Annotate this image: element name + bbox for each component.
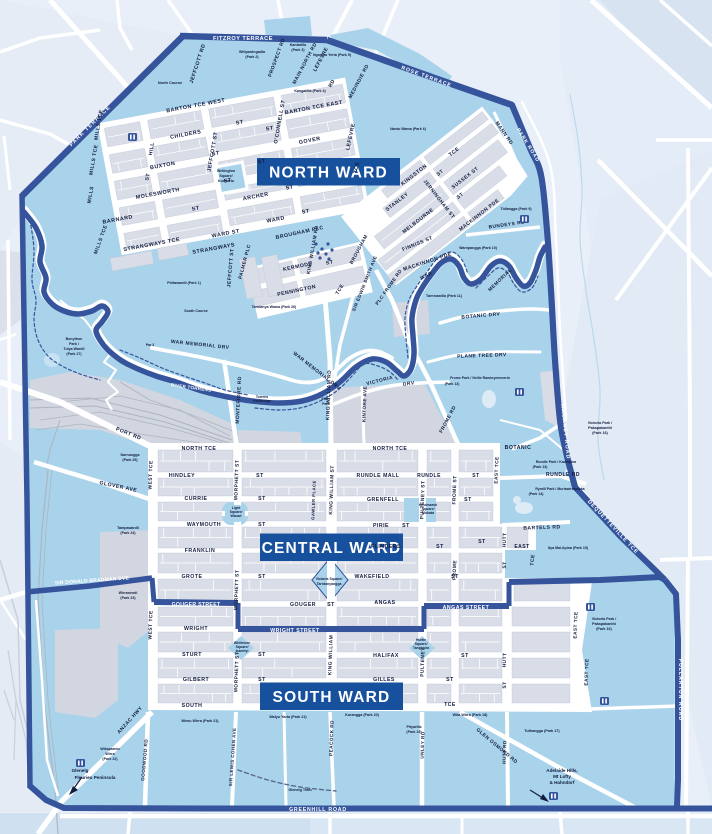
svg-text:GOUGER STREET: GOUGER STREET <box>172 602 221 608</box>
svg-text:Mirnu Wirra (Park 21): Mirnu Wirra (Park 21) <box>181 719 219 723</box>
svg-text:Kurangga (Park 20): Kurangga (Park 20) <box>345 713 380 717</box>
svg-text:WAKEFIELD: WAKEFIELD <box>354 574 389 580</box>
svg-text:FROME ST: FROME ST <box>451 475 458 504</box>
svg-text:EAST TCE: EAST TCE <box>584 658 590 685</box>
svg-text:ANGAS STREET: ANGAS STREET <box>443 605 490 611</box>
svg-text:Wirra: Wirra <box>105 752 115 756</box>
svg-text:ST: ST <box>402 523 410 529</box>
svg-text:Pirltawardli (Park 1): Pirltawardli (Park 1) <box>167 281 201 285</box>
svg-text:TCE: TCE <box>444 702 456 708</box>
svg-text:TCE: TCE <box>530 554 537 566</box>
svg-text:Pakapakanthi: Pakapakanthi <box>588 426 612 430</box>
svg-text:Glenelg: Glenelg <box>72 768 89 773</box>
svg-text:FRANKLIN: FRANKLIN <box>185 548 216 554</box>
svg-text:(Park 13): (Park 13) <box>533 465 548 469</box>
svg-text:NORTH TCE: NORTH TCE <box>373 446 408 452</box>
svg-text:WRIGHT: WRIGHT <box>184 626 208 632</box>
svg-text:Walyu Yarta (Park 21): Walyu Yarta (Park 21) <box>269 715 307 719</box>
svg-text:(Park 12): (Park 12) <box>445 382 460 386</box>
svg-text:FLINDERS: FLINDERS <box>371 544 401 550</box>
svg-text:SOUTH: SOUTH <box>182 703 203 709</box>
svg-text:(Park 3): (Park 3) <box>291 48 305 52</box>
svg-text:ST: ST <box>436 544 444 550</box>
svg-text:Pakapakanthi: Pakapakanthi <box>592 622 616 626</box>
svg-text:Iparrityi: Iparrityi <box>236 649 249 653</box>
svg-text:RUNDLE: RUNDLE <box>417 473 441 479</box>
svg-text:WRIGHT STREET: WRIGHT STREET <box>270 628 320 634</box>
svg-text:ST: ST <box>464 497 472 503</box>
svg-text:Tampawardli: Tampawardli <box>117 526 139 530</box>
svg-text:WAYMOUTH: WAYMOUTH <box>187 522 221 528</box>
svg-text:Wauwi: Wauwi <box>231 514 242 518</box>
svg-text:North Course: North Course <box>158 81 182 85</box>
svg-text:HALIFAX: HALIFAX <box>373 653 399 659</box>
svg-text:RUNDLE RD: RUNDLE RD <box>546 472 580 478</box>
svg-text:Tarntanya Wama (Park 26): Tarntanya Wama (Park 26) <box>252 305 297 309</box>
svg-text:PIRIE: PIRIE <box>373 523 389 529</box>
svg-text:NORTH WARD: NORTH WARD <box>269 165 388 182</box>
svg-text:Warnpangga (Park 10): Warnpangga (Park 10) <box>459 246 498 250</box>
svg-text:UNLEY RD: UNLEY RD <box>420 731 426 759</box>
svg-text:BOTANIC: BOTANIC <box>505 445 532 451</box>
svg-text:EAST TCE: EAST TCE <box>494 456 500 483</box>
svg-text:Pityarilla: Pityarilla <box>407 725 423 729</box>
svg-text:ST: ST <box>461 653 469 659</box>
svg-text:Mukata: Mukata <box>422 511 434 515</box>
svg-text:ST: ST <box>258 677 266 683</box>
svg-text:FROME: FROME <box>452 560 459 581</box>
svg-text:(Park 23): (Park 23) <box>120 596 136 600</box>
svg-text:Nantu Wama (Park 6): Nantu Wama (Park 6) <box>390 127 427 131</box>
svg-text:ST: ST <box>258 522 266 528</box>
svg-text:Witipardngadla: Witipardngadla <box>239 50 266 54</box>
svg-text:ST: ST <box>327 602 335 608</box>
svg-text:Tarnmanilla (Park 11): Tarnmanilla (Park 11) <box>426 294 463 298</box>
svg-text:ST: ST <box>478 539 485 545</box>
svg-text:GREENHILL ROAD: GREENHILL ROAD <box>289 807 347 813</box>
svg-text:STURT: STURT <box>182 652 202 658</box>
svg-text:Tulya Wardli: Tulya Wardli <box>64 347 85 351</box>
svg-text:EAST: EAST <box>514 544 529 550</box>
svg-text:South Course: South Course <box>184 309 208 313</box>
svg-text:HUTT: HUTT <box>502 532 509 547</box>
svg-text:Itya Mai-itpina (Park 15): Itya Mai-itpina (Park 15) <box>548 546 589 550</box>
svg-text:NORTH TCE: NORTH TCE <box>182 446 217 452</box>
svg-text:FITZROY TERRACE: FITZROY TERRACE <box>213 36 273 42</box>
svg-text:GILBERT: GILBERT <box>183 677 210 683</box>
svg-text:Mt Lofty: Mt Lofty <box>553 774 571 779</box>
svg-text:Adelaide Hills,: Adelaide Hills, <box>546 768 577 773</box>
svg-text:SOUTH WARD: SOUTH WARD <box>273 689 391 706</box>
svg-text:ST: ST <box>256 473 264 479</box>
svg-text:WEST TCE: WEST TCE <box>147 460 154 490</box>
svg-text:ST: ST <box>144 173 151 181</box>
svg-text:Kangatilla (Park 4): Kangatilla (Park 4) <box>294 89 326 93</box>
svg-text:Rundle Park / Kadlitpina: Rundle Park / Kadlitpina <box>536 460 576 464</box>
svg-text:EAST TCE: EAST TCE <box>573 611 579 638</box>
svg-text:HUTT: HUTT <box>502 652 509 667</box>
svg-text:ANGAS: ANGAS <box>374 600 395 606</box>
svg-text:(Park 24): (Park 24) <box>120 531 136 535</box>
svg-text:Bonython: Bonython <box>66 337 83 341</box>
svg-text:ST: ST <box>472 473 479 479</box>
svg-text:& Hahndorf: & Hahndorf <box>549 780 574 785</box>
svg-text:Park /: Park / <box>69 342 79 346</box>
svg-text:(Park 14): (Park 14) <box>529 492 544 496</box>
svg-text:PULTENEY: PULTENEY <box>419 647 426 677</box>
svg-text:(Park 2): (Park 2) <box>245 55 259 59</box>
svg-text:Par 3: Par 3 <box>146 343 154 347</box>
svg-text:Victoria Park /: Victoria Park / <box>588 421 613 425</box>
svg-text:Frome Park / Nellie Raminyemme: Frome Park / Nellie Raminyemmerin <box>450 376 510 380</box>
svg-text:Wikaparntu: Wikaparntu <box>100 747 120 751</box>
svg-text:Kudnartu: Kudnartu <box>218 179 234 183</box>
svg-text:HINDLEY: HINDLEY <box>169 473 195 479</box>
svg-text:GOUGER: GOUGER <box>290 602 316 608</box>
svg-text:WEST TCE: WEST TCE <box>147 610 154 640</box>
svg-text:FULLARTON ROAD: FULLARTON ROAD <box>677 659 683 721</box>
svg-text:GROTE: GROTE <box>182 574 203 580</box>
svg-text:Tarntanyangga: Tarntanyangga <box>317 582 342 586</box>
svg-text:Tangkaira: Tangkaira <box>413 646 429 650</box>
svg-text:Victoria Square/: Victoria Square/ <box>316 577 343 581</box>
svg-text:CURRIE: CURRIE <box>185 496 208 502</box>
svg-text:Rymill Park / Murlawirrapurka: Rymill Park / Murlawirrapurka <box>535 487 584 491</box>
svg-text:(Park 27): (Park 27) <box>66 352 82 356</box>
svg-text:Square/: Square/ <box>219 174 232 178</box>
svg-text:RUNDLE MALL: RUNDLE MALL <box>357 473 400 479</box>
svg-text:GILLES: GILLES <box>373 677 395 683</box>
svg-text:(Park 16): (Park 16) <box>596 627 612 631</box>
svg-text:Tuthangga (Park 17): Tuthangga (Park 17) <box>524 729 560 733</box>
svg-text:Wellington: Wellington <box>217 169 235 173</box>
svg-text:(Park 25): (Park 25) <box>122 458 138 462</box>
svg-text:Kantarilla: Kantarilla <box>290 43 307 47</box>
svg-text:ST: ST <box>258 574 266 580</box>
svg-text:Narnungga: Narnungga <box>121 453 141 457</box>
svg-text:Wirranendi: Wirranendi <box>119 591 138 595</box>
svg-text:ST: ST <box>502 561 508 568</box>
svg-text:Victoria Park /: Victoria Park / <box>592 617 617 621</box>
svg-text:Tidlangga (Park 9): Tidlangga (Park 9) <box>500 207 532 211</box>
svg-text:ST: ST <box>446 677 454 683</box>
svg-text:Footbridge: Footbridge <box>253 399 271 403</box>
svg-text:Ngampa Yerta (Park 5): Ngampa Yerta (Park 5) <box>313 53 352 57</box>
svg-text:(Park 16): (Park 16) <box>592 431 608 435</box>
svg-text:(Park 22): (Park 22) <box>102 757 118 761</box>
svg-text:ST: ST <box>502 681 508 688</box>
svg-text:ST: ST <box>258 496 266 502</box>
svg-text:ST: ST <box>258 652 266 658</box>
svg-text:Wita Wirra (Park 18): Wita Wirra (Park 18) <box>453 713 489 717</box>
svg-text:GRENFELL: GRENFELL <box>367 497 399 503</box>
